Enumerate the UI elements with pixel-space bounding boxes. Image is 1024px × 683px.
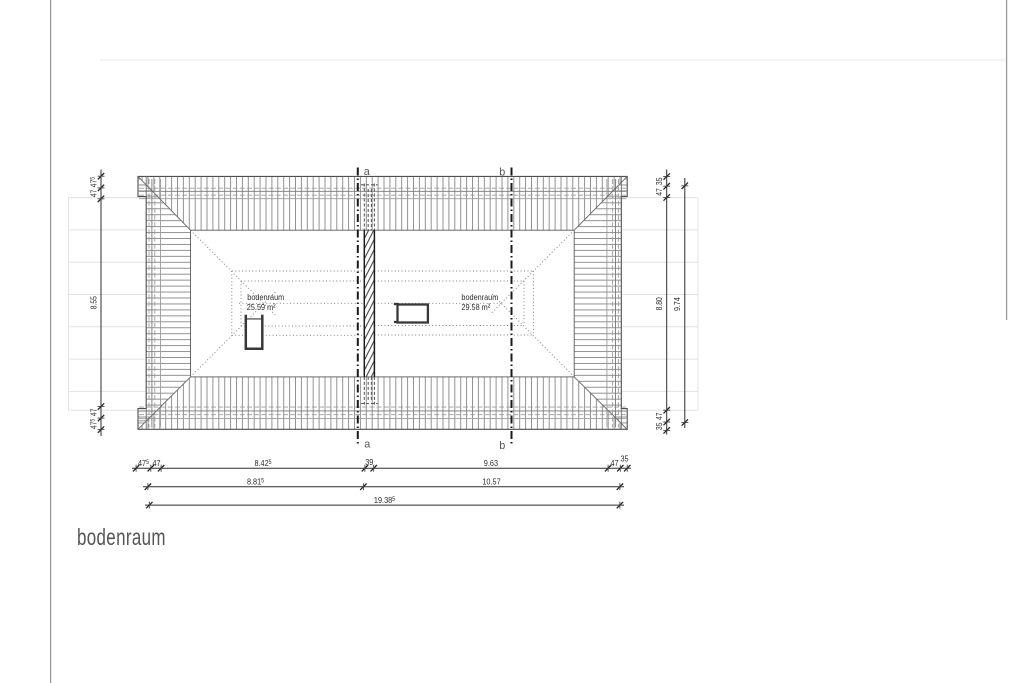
svg-text:39: 39 xyxy=(365,457,373,467)
svg-text:47: 47 xyxy=(654,188,664,196)
svg-text:8.80: 8.80 xyxy=(654,297,664,310)
svg-text:47: 47 xyxy=(610,459,618,469)
svg-text:10.57: 10.57 xyxy=(482,477,500,487)
svg-text:35: 35 xyxy=(620,454,629,464)
svg-text:bodenraum: bodenraum xyxy=(247,293,284,303)
svg-text:47: 47 xyxy=(152,459,160,469)
svg-text:9.74: 9.74 xyxy=(672,296,682,311)
svg-text:47: 47 xyxy=(654,412,664,420)
svg-text:a: a xyxy=(364,166,370,178)
svg-text:47: 47 xyxy=(89,190,99,198)
svg-text:29.58 m²: 29.58 m² xyxy=(461,303,490,313)
svg-text:35: 35 xyxy=(654,178,664,186)
svg-text:a: a xyxy=(364,438,370,450)
svg-text:25.59 m²: 25.59 m² xyxy=(247,303,276,313)
svg-text:b: b xyxy=(499,167,505,179)
svg-text:8.55: 8.55 xyxy=(89,296,99,309)
svg-text:8.815: 8.815 xyxy=(247,477,264,487)
svg-text:9.63: 9.63 xyxy=(484,459,499,469)
svg-text:19.385: 19.385 xyxy=(374,496,395,506)
svg-text:35: 35 xyxy=(654,423,664,431)
svg-text:47: 47 xyxy=(89,409,99,417)
svg-text:475: 475 xyxy=(138,459,149,469)
svg-text:475: 475 xyxy=(89,419,99,429)
svg-text:475: 475 xyxy=(89,177,99,187)
svg-text:b: b xyxy=(499,440,505,452)
svg-text:bodenraum: bodenraum xyxy=(461,293,498,303)
svg-text:8.425: 8.425 xyxy=(254,459,271,469)
svg-text:bodenraum: bodenraum xyxy=(77,524,166,550)
